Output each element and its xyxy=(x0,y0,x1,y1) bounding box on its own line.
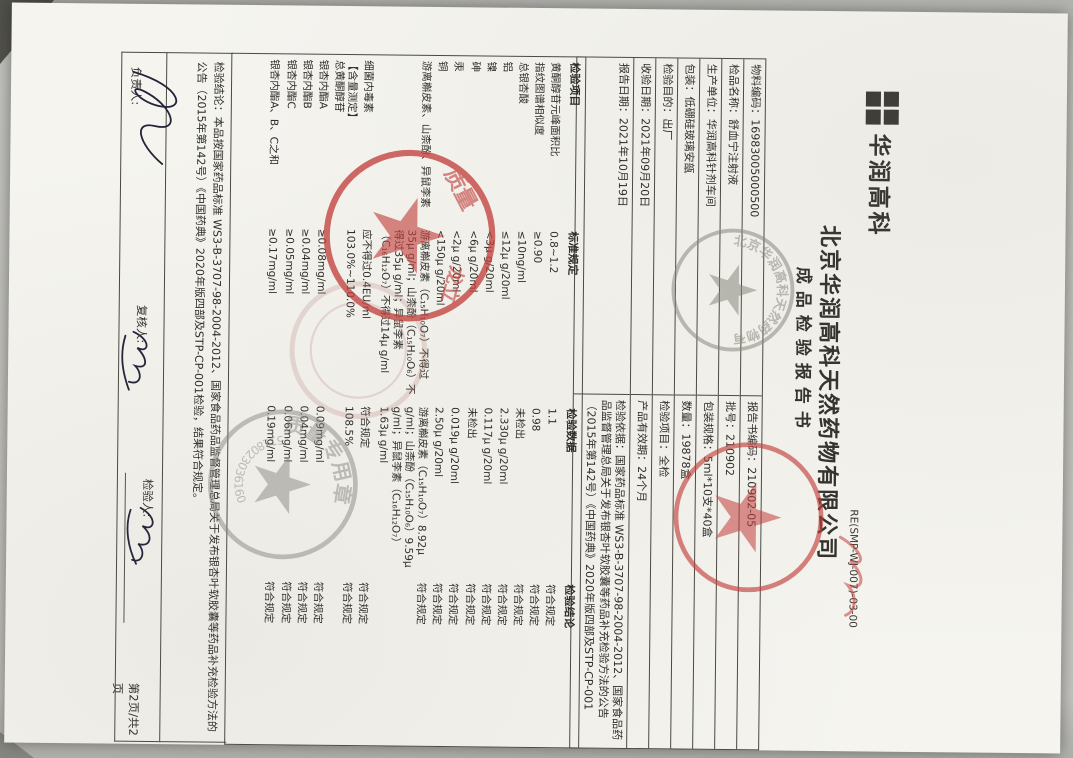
item-name-cell: 银杏内酯A xyxy=(313,55,331,224)
item-standard-cell: <2μ g/20ml xyxy=(447,225,465,402)
item-result-cell: 符合规定 xyxy=(324,577,355,745)
conclusion-text: 检验结论：本品按国家药品标准 WS3-B-3707-98-2004-2012、国… xyxy=(191,61,226,732)
item-name-cell: 银杏内酯C xyxy=(281,54,299,223)
item-data-cell: 2.50μ g/20ml xyxy=(429,402,447,578)
item-name-cell: 铝 xyxy=(497,57,515,226)
item-data-cell: 0.019μ g/20ml xyxy=(445,402,463,578)
item-result-cell: 符合规定 xyxy=(444,578,462,746)
report-page: 华润高科 北京华润高科天然药物有限公司 RE(SMP-WJ-007)-03-00… xyxy=(4,2,1068,753)
item-name-cell: 【含量测定】 总黄酮醇苷 xyxy=(329,55,360,224)
item-data-cell: 0.06mg/ml xyxy=(277,400,295,576)
item-name-cell: 黄酮醇苷元峰面积比 xyxy=(546,57,564,226)
col-header-result: 检验结论 xyxy=(556,579,580,747)
responsible-signature xyxy=(118,64,191,175)
item-name-cell: 指纹图谱相似度 xyxy=(530,57,548,226)
col-header-standard: 标准规定 xyxy=(560,226,584,403)
item-result-cell: 符合规定 xyxy=(508,579,526,747)
item-name-cell: 银杏内酯A、B、C之和 xyxy=(265,54,283,223)
item-data-cell: 0.04mg/ml xyxy=(294,400,312,576)
page-number: 第2页/共2页 xyxy=(109,683,142,741)
item-data-cell: 2.330μ g/20ml xyxy=(494,403,512,579)
item-result-cell: 符合规定 xyxy=(276,576,294,744)
item-standard-cell: 103.0%~110.0% xyxy=(328,224,359,401)
quantity: 数量：19878盒 xyxy=(671,395,696,748)
company-logo: 华润高科 xyxy=(863,91,899,237)
pack-spec: 包装规格：5ml*10支*40盒 xyxy=(693,396,718,749)
item-data-cell: 未检出 xyxy=(510,403,528,579)
item-result-cell: 符合规定 xyxy=(308,577,326,745)
test-purpose: 检验目的：出厂 xyxy=(653,58,678,395)
huarun-logo-icon xyxy=(865,91,899,125)
item-standard-cell: ≥0.04mg/ml xyxy=(295,223,313,400)
item-name-cell: 砷 xyxy=(465,56,483,225)
shelf-life: 产品有效期：24个月 xyxy=(627,395,652,748)
producer: 生产单位：华润高科针剂车间 xyxy=(697,59,722,396)
item-result-cell: 符合规定 xyxy=(353,577,371,745)
item-data-cell: 0.98 xyxy=(526,403,544,579)
scanner-canvas: 华润高科 北京华润高科天然药物有限公司 RE(SMP-WJ-007)-03-00… xyxy=(0,0,1073,758)
material-code: 物料编码：16983005000500 xyxy=(741,59,766,396)
item-result-cell: 符合规定 xyxy=(492,579,510,747)
inspector-signature xyxy=(122,502,167,582)
col-header-data: 检验数据 xyxy=(558,403,582,579)
item-standard-cell: ≥0.17mg/ml xyxy=(263,223,281,400)
item-standard-cell: 0.8~1.2 xyxy=(544,226,562,403)
col-header-item: 检验项目 xyxy=(562,57,586,226)
batch-number: 批号：210902 xyxy=(715,396,740,749)
item-name-cell: 总银杏酸 xyxy=(513,57,531,226)
item-data-cell: 0.19mg/ml xyxy=(261,400,279,576)
item-standard-cell: ≤10ng/ml xyxy=(512,226,530,403)
item-standard-cell: ≥0.90 xyxy=(528,226,546,403)
item-name-cell: 镍 xyxy=(481,56,499,225)
item-result-cell: 符合规定 xyxy=(260,576,278,744)
item-standard-cell: ≥0.08mg/ml xyxy=(312,224,330,401)
item-result-cell: 符合规定 xyxy=(427,578,445,746)
item-row: 游离槲皮素、山柰酚、异鼠李素 游离槲皮素（C₁₅H₁₀O₇）不得过35μ g/m… xyxy=(369,55,434,746)
report-title: 成品检验报告书 xyxy=(791,267,818,435)
item-data-cell: 未检出 xyxy=(461,402,479,578)
test-scope: 检验项目：全检 xyxy=(649,395,674,748)
reviewer-signature xyxy=(117,326,162,406)
item-name-cell: 银杏内酯B xyxy=(297,55,315,224)
item-standard-cell: ≤12μ g/20ml xyxy=(495,226,513,403)
item-result-cell: 符合规定 xyxy=(540,579,558,747)
sample-info-table: 物料编码：16983005000500 报告书编码：210902-05 检品名称… xyxy=(569,56,766,750)
item-standard-cell: <3μ g/20ml xyxy=(479,225,497,402)
sample-name: 检品名称：舒血宁注射液 xyxy=(719,59,744,396)
item-standard-cell: 应不得过0.4EU/ml xyxy=(357,224,375,401)
item-standard-cell: ≥0.05mg/ml xyxy=(279,223,297,400)
item-name-cell: 细菌内毒素 xyxy=(359,55,377,224)
item-data-cell: 108.5% xyxy=(326,401,357,577)
logo-text: 华润高科 xyxy=(863,133,898,237)
receive-date: 收验日期：2021年09月20日 xyxy=(631,58,656,395)
item-result-cell: 符合规定 xyxy=(369,577,429,746)
red-ink-mark xyxy=(825,531,876,622)
item-result-cell: 符合规定 xyxy=(476,578,494,746)
item-standard-cell: 游离槲皮素（C₁₅H₁₀O₇）不得过35μ g/ml；山柰酚（C₁₅H₁₀O₆）… xyxy=(373,224,433,402)
item-name-cell: 铜 xyxy=(433,56,451,225)
item-data-cell: 1.1 xyxy=(542,403,560,579)
item-data-cell: 符合规定 xyxy=(355,401,373,577)
item-result-cell: 符合规定 xyxy=(524,579,542,747)
report-code: 报告书编码：210902-05 xyxy=(737,396,762,749)
item-name-cell: 游离槲皮素、山柰酚、异鼠李素 xyxy=(375,55,435,225)
item-standard-cell: <150μ g/20ml xyxy=(431,225,449,402)
item-data-cell: 0.09mg/ml xyxy=(310,401,328,577)
item-data-cell: 游离槲皮素（C₁₅H₁₀O₇）8.92μ g/ml；山柰酚（C₁₅H₁₀O₆）9… xyxy=(371,401,431,578)
item-name-cell: 汞 xyxy=(449,56,467,225)
item-result-cell: 符合规定 xyxy=(460,578,478,746)
item-standard-cell: <6μ g/20ml xyxy=(463,225,481,402)
test-items-table: 检验项目 标准规定 检验数据 检验结论 黄酮醇苷元峰面积比 0.8~1.2 1.… xyxy=(224,53,586,749)
package: 包装：低硼硅玻璃安瓿 xyxy=(675,58,700,395)
item-data-cell: 0.117μ g/20ml xyxy=(478,402,496,578)
item-result-cell: 符合规定 xyxy=(292,576,310,744)
